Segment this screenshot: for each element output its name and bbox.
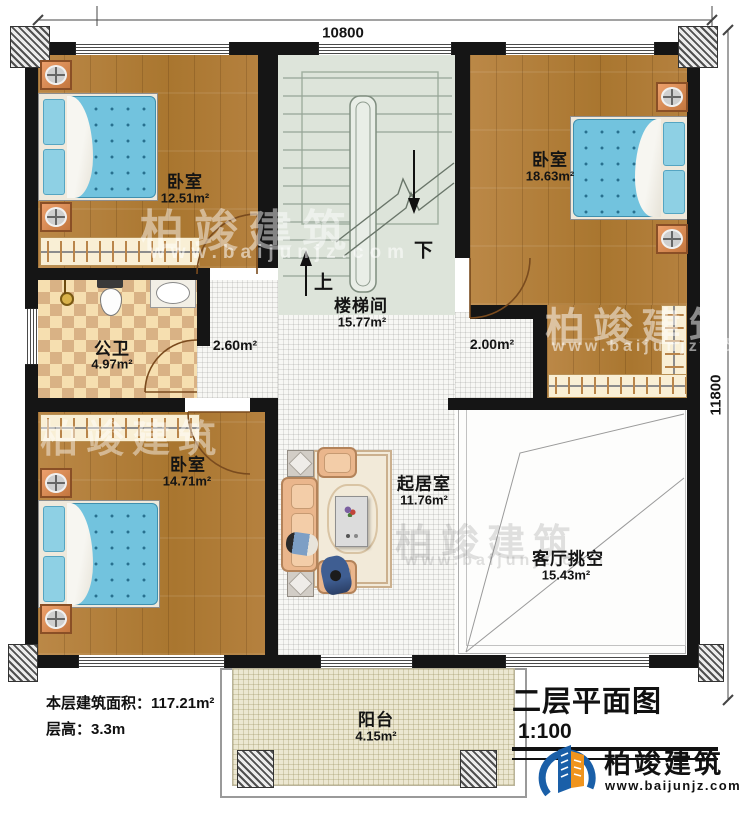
wall-bath-bottom xyxy=(25,398,185,412)
logo-icon xyxy=(538,738,600,804)
room-area-living: 11.76m² xyxy=(400,493,448,508)
window-bottom-bedroom-bl xyxy=(78,655,225,668)
dimension-right: 11800 xyxy=(708,375,725,416)
dimension-top: 10800 xyxy=(322,25,364,42)
vent-box-icon xyxy=(656,224,688,254)
logo-name: 柏竣建筑 xyxy=(604,742,724,781)
page-title: 二层平面图 xyxy=(512,686,662,718)
pillar-top-right xyxy=(678,26,718,68)
side-table-lamp-bottom xyxy=(287,570,314,597)
room-label-stairwell: 楼梯间 xyxy=(334,292,388,317)
hall-right-area: 2.00m² xyxy=(470,336,514,352)
floor-area-info: 本层建筑面积：117.21m² xyxy=(46,692,214,713)
window-top-stairwell xyxy=(318,42,452,55)
floor-area-value: 117.21m² xyxy=(151,695,214,712)
stairs-up-label: 上 xyxy=(314,268,334,295)
floor-area-label: 本层建筑面积： xyxy=(46,695,151,712)
room-label-bedroom-tl: 卧室 xyxy=(167,168,203,193)
void-border-inner xyxy=(466,406,686,646)
window-top-bedroom-tr xyxy=(505,42,655,55)
room-area-stairwell: 15.77m² xyxy=(338,315,386,330)
room-area-void: 15.43m² xyxy=(542,568,590,583)
hall-left-area: 2.60m² xyxy=(213,337,257,353)
window-left-bathroom xyxy=(25,308,38,365)
wall-br-tr-corridor xyxy=(470,305,533,319)
pillar-bottom-right xyxy=(698,644,724,682)
vent-box-icon xyxy=(40,468,72,498)
wall-bath-right xyxy=(197,268,210,346)
balcony-door xyxy=(320,655,413,668)
room-label-living: 起居室 xyxy=(397,470,451,495)
window-top-bedroom-tl xyxy=(75,42,230,55)
wall-corridor-ext xyxy=(533,305,547,410)
wardrobe-bedroom-bl xyxy=(40,414,200,442)
logo: 柏竣建筑 www.baijunjz.com xyxy=(538,738,738,808)
wall-right xyxy=(687,42,700,668)
room-label-balcony: 阳台 xyxy=(358,706,394,731)
coffee-table xyxy=(335,496,368,547)
vent-box-icon xyxy=(656,82,688,112)
wall-br-tl-stair xyxy=(258,42,278,268)
room-label-bedroom-bl: 卧室 xyxy=(170,451,206,476)
hall-corridor-right-floor xyxy=(455,312,533,398)
room-label-void: 客厅挑空 xyxy=(532,545,604,570)
bed-bl xyxy=(38,500,160,608)
floor-height-info: 层高：3.3m xyxy=(46,718,125,739)
logo-url: www.baijunjz.com xyxy=(605,778,741,793)
pillar-bottom-left xyxy=(8,644,38,682)
wall-void-top xyxy=(448,398,700,410)
shower-head xyxy=(60,292,74,306)
balcony-pillar-left xyxy=(237,750,274,788)
wardrobe-bedroom-tr-side xyxy=(661,305,687,375)
stairwell-floor xyxy=(278,55,455,315)
bed-tr xyxy=(570,116,688,220)
armchair-top xyxy=(317,447,357,478)
floor-plan: 柏竣建筑 www.baijunjz.com 柏竣建筑 www.baijunjz.… xyxy=(0,0,750,823)
room-area-balcony: 4.15m² xyxy=(355,729,396,744)
room-area-bedroom-tr: 18.63m² xyxy=(526,169,574,184)
vent-box-icon xyxy=(40,60,72,90)
side-table-lamp-top xyxy=(287,450,314,477)
wall-br-tl-bottom xyxy=(25,268,200,280)
vent-box-icon xyxy=(40,202,72,232)
bed-tl xyxy=(38,93,158,201)
room-label-bedroom-tr: 卧室 xyxy=(532,146,568,171)
sink-basin xyxy=(156,282,190,304)
wardrobe-bedroom-tl xyxy=(40,237,200,266)
wall-br-bl-living xyxy=(265,398,278,655)
stairs-down-label: 下 xyxy=(414,236,434,263)
vent-box-icon xyxy=(40,604,72,634)
balcony-pillar-right xyxy=(460,750,497,788)
floor-height-label: 层高： xyxy=(46,721,91,738)
room-area-bedroom-bl: 14.71m² xyxy=(163,474,211,489)
window-bottom-void xyxy=(505,655,650,668)
sofa xyxy=(281,477,318,572)
room-area-bathroom: 4.97m² xyxy=(91,357,132,372)
wardrobe-bedroom-tr-bottom xyxy=(548,374,687,398)
wall-stair-br-tr xyxy=(455,42,470,258)
floor-height-value: 3.3m xyxy=(91,721,125,738)
room-area-bedroom-tl: 12.51m² xyxy=(161,191,209,206)
